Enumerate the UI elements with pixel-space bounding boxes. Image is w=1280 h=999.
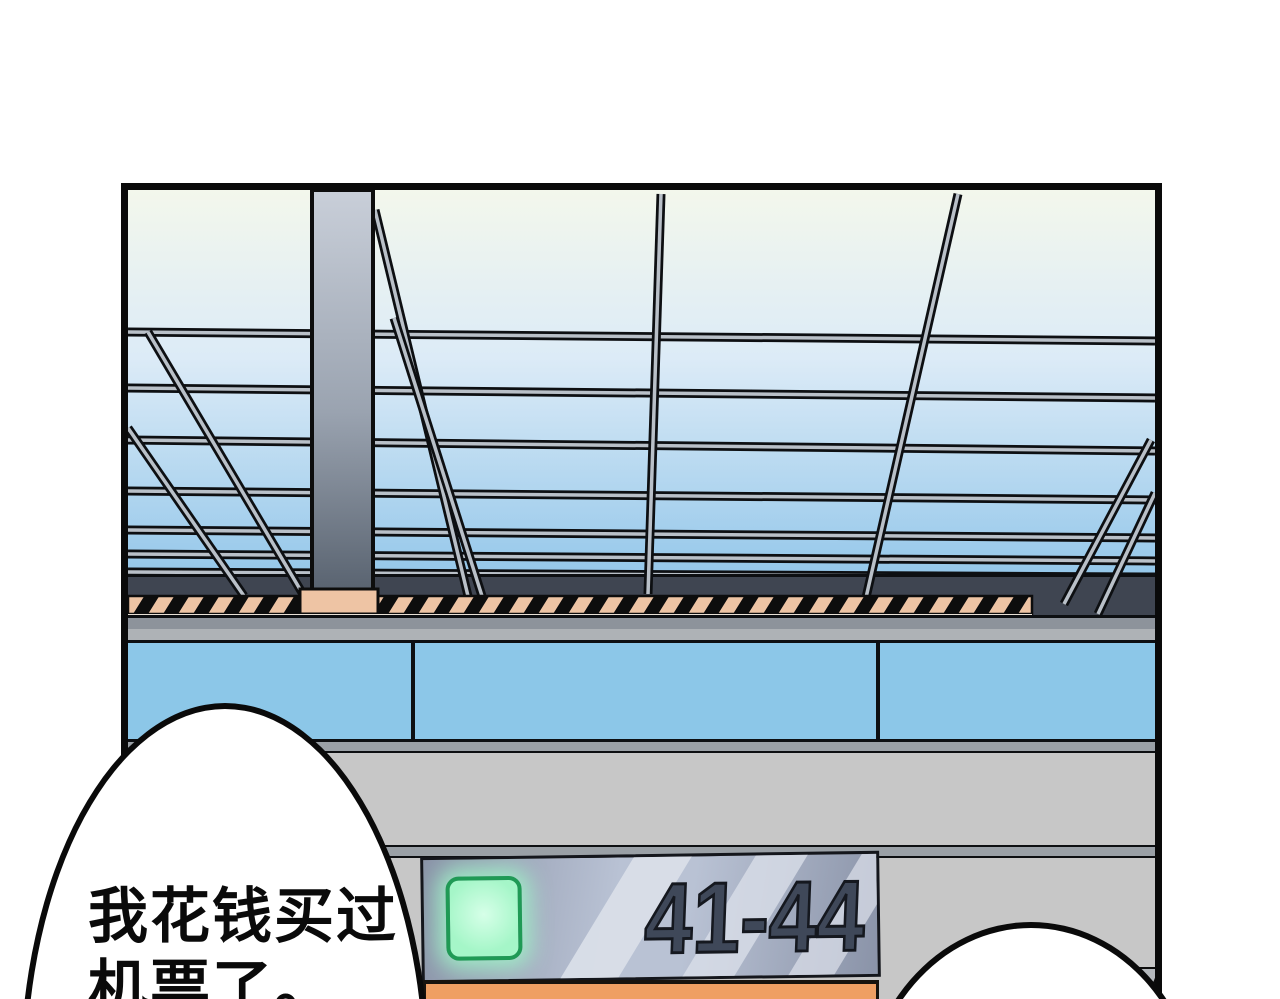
- roof-beam: [128, 615, 1155, 643]
- glass-mullion: [876, 643, 880, 739]
- status-light: [445, 876, 522, 961]
- gate-sign-plate: 41-44: [420, 851, 881, 983]
- fascia-edge: [128, 574, 1155, 577]
- glass-mullion: [411, 643, 415, 739]
- orange-trim: [423, 980, 879, 999]
- speech-bubble-text: 我花钱买过机票了。: [88, 881, 412, 999]
- support-pillar: [312, 190, 373, 594]
- comic-page: 41-44 我花钱买过机票了。: [0, 0, 1280, 999]
- gate-number: 41-44: [643, 866, 867, 969]
- pillar-base-pad: [300, 589, 378, 614]
